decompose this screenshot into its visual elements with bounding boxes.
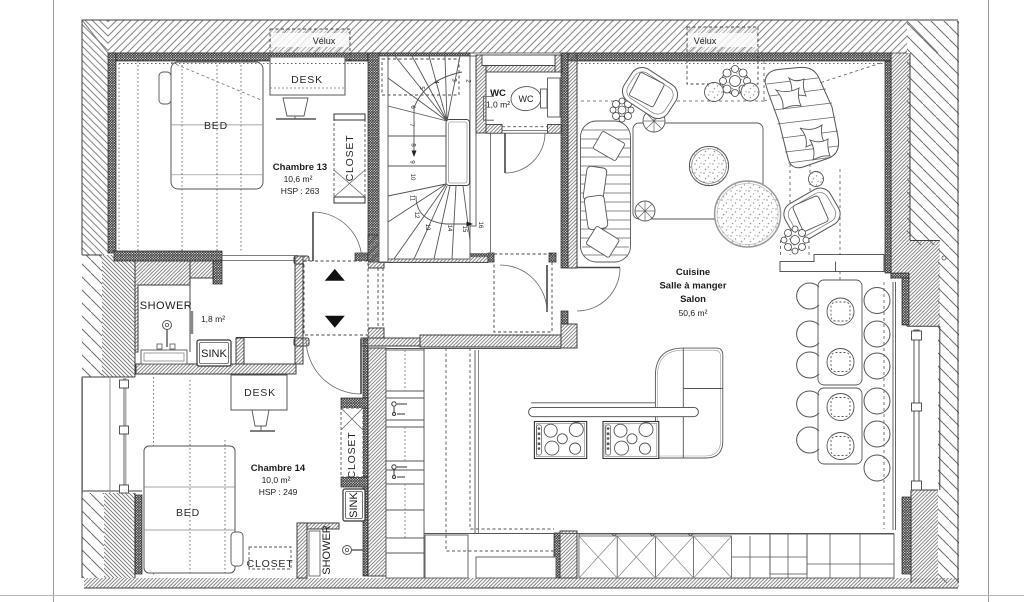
svg-text:13: 13 [424, 224, 430, 231]
svg-text:11: 11 [409, 195, 415, 202]
svg-text:DESK: DESK [291, 74, 323, 86]
svg-text:Vélux: Vélux [694, 36, 717, 46]
svg-text:12: 12 [413, 212, 419, 219]
svg-text:WC: WC [490, 88, 506, 99]
svg-text:HSP : 249: HSP : 249 [259, 487, 298, 497]
svg-text:CLOSET: CLOSET [344, 135, 356, 182]
svg-text:CLOSET: CLOSET [247, 558, 294, 570]
svg-text:WC: WC [519, 94, 534, 104]
svg-text:16: 16 [477, 222, 483, 229]
svg-text:14: 14 [446, 225, 452, 232]
svg-text:10,6 m²: 10,6 m² [284, 174, 313, 184]
svg-text:BED: BED [204, 120, 228, 132]
svg-text:10: 10 [409, 174, 415, 181]
svg-text:Cuisine: Cuisine [676, 267, 710, 278]
svg-text:Chambre 14: Chambre 14 [251, 463, 306, 474]
svg-text:HSP : 263: HSP : 263 [281, 186, 320, 196]
svg-text:BED: BED [176, 507, 200, 519]
svg-text:Salon: Salon [680, 294, 706, 305]
svg-text:SHOWER: SHOWER [321, 525, 333, 575]
svg-text:15: 15 [461, 226, 467, 233]
svg-text:DESK: DESK [244, 387, 276, 399]
svg-text:Vélux: Vélux [313, 36, 336, 46]
svg-text:1,0 m²: 1,0 m² [486, 100, 510, 110]
svg-text:Chambre 13: Chambre 13 [273, 162, 327, 173]
svg-text:SINK: SINK [201, 348, 227, 360]
svg-text:SHOWER: SHOWER [140, 300, 193, 312]
svg-text:CLOSET: CLOSET [346, 432, 358, 479]
svg-text:10,0 m²: 10,0 m² [262, 475, 291, 485]
svg-text:SINK: SINK [348, 492, 360, 518]
svg-text:1,8 m²: 1,8 m² [201, 314, 225, 324]
svg-text:50,6 m²: 50,6 m² [679, 308, 708, 318]
svg-text:Salle à manger: Salle à manger [659, 281, 726, 292]
